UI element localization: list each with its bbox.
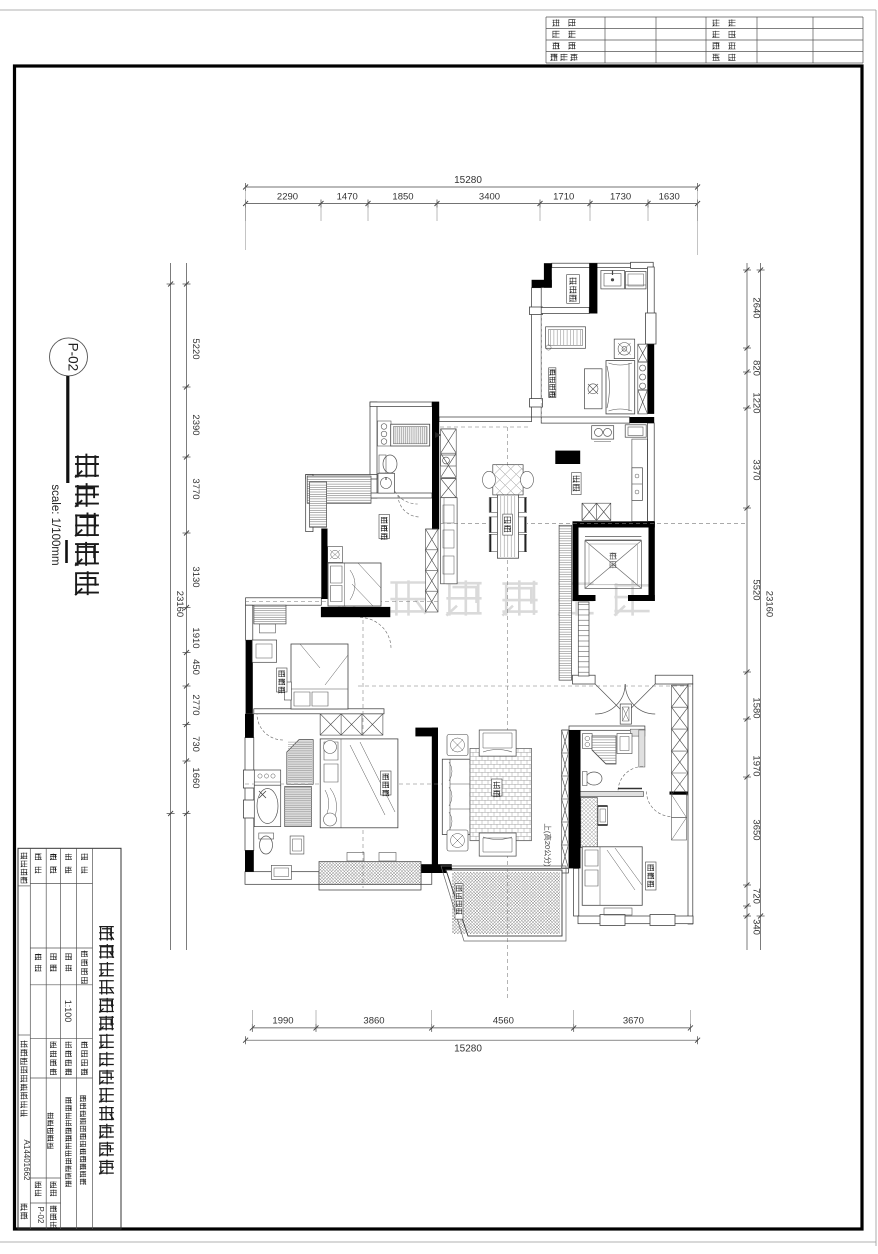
svg-text:5220: 5220 bbox=[190, 338, 201, 359]
svg-text:3400: 3400 bbox=[479, 192, 500, 203]
svg-text:P-02: P-02 bbox=[36, 1207, 45, 1224]
svg-text:3770: 3770 bbox=[190, 478, 201, 499]
svg-text:3670: 3670 bbox=[623, 1016, 644, 1027]
svg-text:1630: 1630 bbox=[659, 192, 680, 203]
svg-text:2290: 2290 bbox=[277, 192, 298, 203]
svg-text:820: 820 bbox=[751, 360, 762, 376]
svg-text:450: 450 bbox=[190, 659, 201, 675]
svg-text:2390: 2390 bbox=[190, 414, 201, 435]
svg-text:15280: 15280 bbox=[454, 1044, 482, 1055]
svg-text:5520: 5520 bbox=[751, 579, 762, 600]
svg-text:1:100: 1:100 bbox=[63, 1000, 73, 1023]
svg-text:23160: 23160 bbox=[174, 591, 185, 617]
svg-text:23160: 23160 bbox=[764, 591, 775, 617]
svg-text:340: 340 bbox=[751, 919, 762, 935]
svg-text:1580: 1580 bbox=[751, 697, 762, 718]
svg-text:1970: 1970 bbox=[751, 755, 762, 776]
svg-text:1470: 1470 bbox=[337, 192, 358, 203]
svg-text:3860: 3860 bbox=[363, 1016, 384, 1027]
svg-text:1730: 1730 bbox=[610, 192, 631, 203]
svg-text:720: 720 bbox=[751, 888, 762, 904]
svg-text:730: 730 bbox=[190, 736, 201, 752]
svg-text:1220: 1220 bbox=[751, 392, 762, 413]
svg-text:4560: 4560 bbox=[493, 1016, 514, 1027]
svg-text:3650: 3650 bbox=[751, 819, 762, 840]
svg-text:1850: 1850 bbox=[392, 192, 413, 203]
svg-text:上(高20公分): 上(高20公分) bbox=[543, 823, 553, 867]
svg-text:A14401662: A14401662 bbox=[22, 1140, 31, 1181]
svg-text:1990: 1990 bbox=[272, 1016, 293, 1027]
svg-text:2770: 2770 bbox=[190, 694, 201, 715]
svg-text:3130: 3130 bbox=[190, 566, 201, 587]
svg-text:2640: 2640 bbox=[751, 297, 762, 318]
svg-text:3370: 3370 bbox=[751, 459, 762, 480]
svg-text:1660: 1660 bbox=[190, 767, 201, 788]
svg-text:P-02: P-02 bbox=[66, 343, 81, 372]
svg-text:1710: 1710 bbox=[553, 192, 574, 203]
svg-text:1910: 1910 bbox=[190, 627, 201, 648]
svg-text:15280: 15280 bbox=[454, 175, 482, 186]
svg-text:scale: 1/100mm: scale: 1/100mm bbox=[49, 484, 61, 565]
